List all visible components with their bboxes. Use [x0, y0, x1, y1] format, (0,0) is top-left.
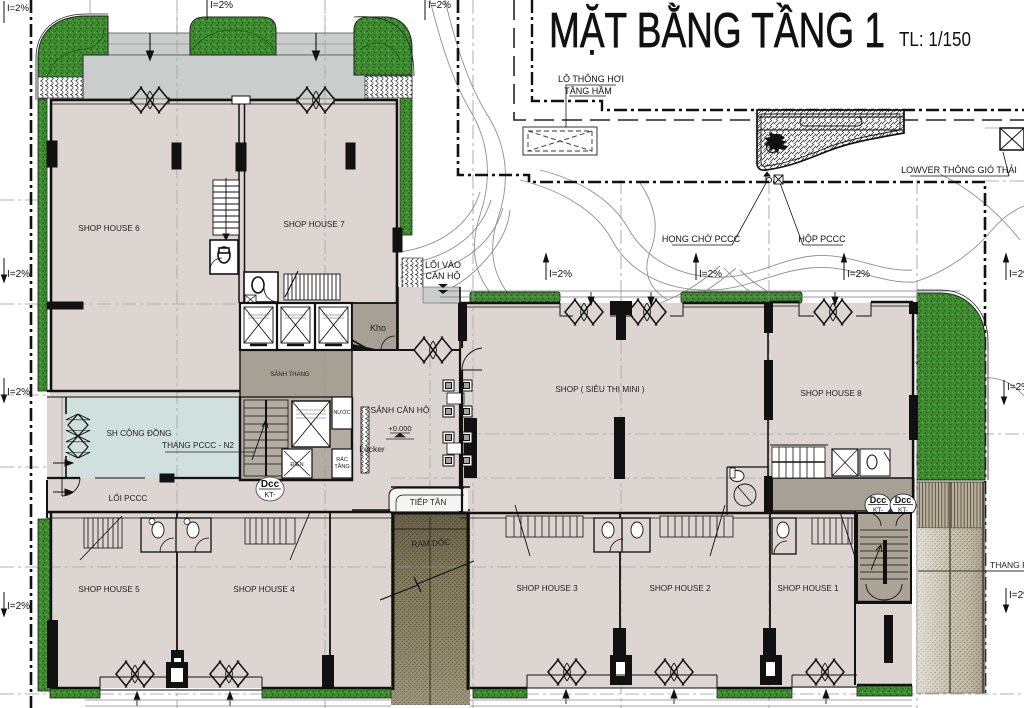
- svg-text:HỌNG CHỜ PCCC: HỌNG CHỜ PCCC: [662, 234, 741, 244]
- svg-text:+0.000: +0.000: [388, 424, 411, 433]
- svg-text:Dcc: Dcc: [261, 479, 280, 490]
- svg-text:Dcc: Dcc: [870, 495, 887, 505]
- svg-text:SHOP ( SIÊU THỊ MINI ): SHOP ( SIÊU THỊ MINI ): [555, 384, 645, 394]
- svg-text:SẢNH CĂN HỘ: SẢNH CĂN HỘ: [370, 404, 429, 415]
- svg-text:RÁC: RÁC: [336, 456, 348, 463]
- svg-text:I=2%: I=2%: [847, 269, 870, 280]
- svg-text:I=2%: I=2%: [1007, 382, 1024, 393]
- svg-text:THANG PC: THANG PC: [990, 560, 1024, 570]
- svg-text:HỘP PCCC: HỘP PCCC: [798, 234, 846, 244]
- svg-text:I=2%: I=2%: [7, 269, 30, 280]
- svg-text:LỐI VÀO: LỐI VÀO: [425, 259, 461, 270]
- svg-text:I=2%: I=2%: [210, 0, 233, 11]
- svg-text:NƯỚC: NƯỚC: [333, 409, 350, 416]
- svg-text:SHOP HOUSE 2: SHOP HOUSE 2: [649, 584, 711, 593]
- svg-text:I=2%: I=2%: [7, 3, 29, 14]
- svg-text:THANG PCCC - N2: THANG PCCC - N2: [162, 441, 234, 450]
- svg-text:TẦNG: TẦNG: [334, 463, 349, 470]
- svg-text:TẦNG HẦM: TẦNG HẦM: [564, 86, 612, 96]
- svg-text:CĂN HỘ: CĂN HỘ: [425, 271, 460, 281]
- svg-text:SHOP HOUSE 1: SHOP HOUSE 1: [777, 584, 839, 593]
- svg-text:SHOP HOUSE 7: SHOP HOUSE 7: [283, 220, 345, 229]
- svg-text:KT-: KT-: [265, 492, 277, 499]
- svg-text:TL: 1/150: TL: 1/150: [899, 29, 971, 51]
- svg-text:I=2%: I=2%: [428, 0, 451, 11]
- svg-text:Kho: Kho: [370, 323, 386, 333]
- svg-text:I=2%: I=2%: [7, 601, 30, 612]
- svg-text:SHOP HOUSE 5: SHOP HOUSE 5: [78, 585, 140, 594]
- svg-text:I=2%: I=2%: [699, 269, 722, 280]
- svg-text:I=2%: I=2%: [549, 269, 572, 280]
- svg-text:SH CỘNG ĐỒNG: SH CỘNG ĐỒNG: [106, 427, 171, 438]
- svg-text:Locker: Locker: [359, 444, 385, 454]
- svg-text:SẢNH THANG: SẢNH THANG: [270, 371, 310, 378]
- svg-text:TIẾP TÂN: TIẾP TÂN: [410, 497, 447, 507]
- svg-text:I=2%: I=2%: [1009, 269, 1024, 280]
- svg-text:I=2%: I=2%: [7, 387, 30, 398]
- svg-text:SHOP HOUSE 3: SHOP HOUSE 3: [516, 584, 578, 593]
- svg-text:I=2%: I=2%: [1009, 590, 1024, 601]
- svg-text:LOWVER THÔNG GIÓ THẢI: LOWVER THÔNG GIÓ THẢI: [901, 164, 1017, 175]
- svg-text:LÔ THÔNG HƠI: LÔ THÔNG HƠI: [558, 74, 624, 84]
- svg-text:Dcc: Dcc: [895, 495, 912, 505]
- svg-text:SHOP HOUSE 4: SHOP HOUSE 4: [233, 585, 295, 594]
- svg-text:LỐI PCCC: LỐI PCCC: [109, 492, 148, 503]
- svg-text:SHOP HOUSE 6: SHOP HOUSE 6: [78, 224, 140, 233]
- svg-text:MẶT BẰNG TẦNG 1: MẶT BẰNG TẦNG 1: [549, 4, 885, 58]
- svg-text:ĐIỆN: ĐIỆN: [290, 460, 303, 468]
- svg-text:SHOP HOUSE 8: SHOP HOUSE 8: [800, 389, 862, 398]
